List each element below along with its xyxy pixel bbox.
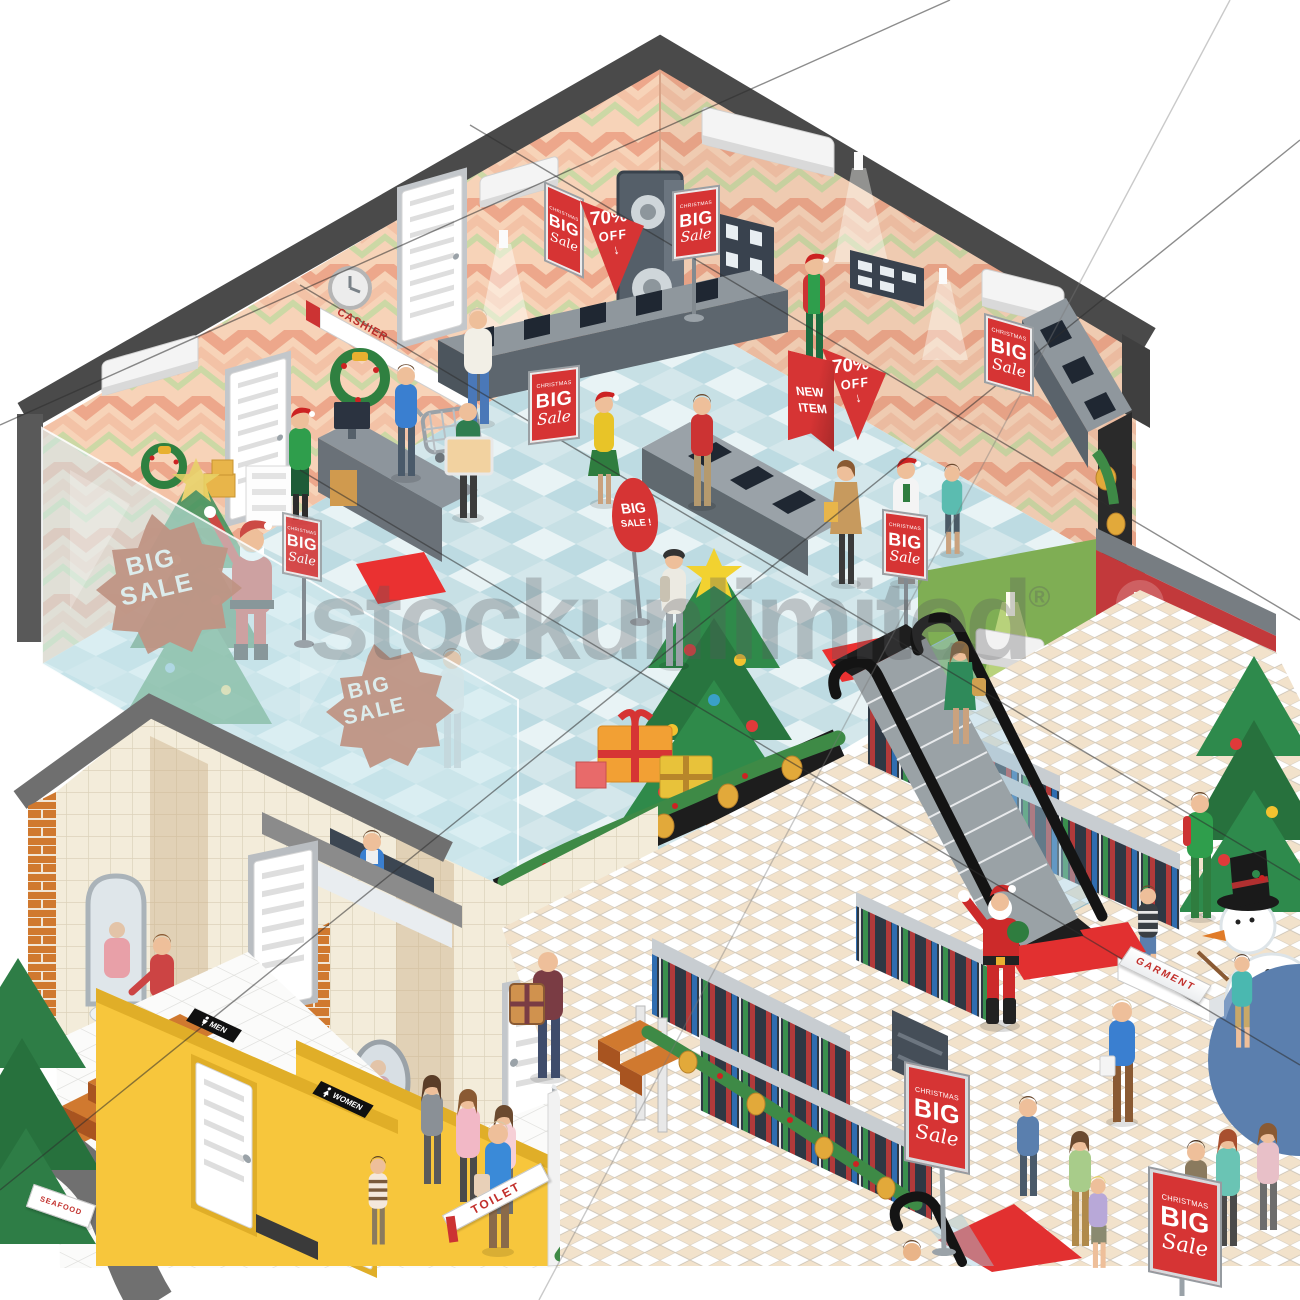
men-door xyxy=(191,1054,257,1237)
illustration-canvas: CASHIER CHRISTMAS BIG Sale CHRISTMAS BIG… xyxy=(0,0,1300,1300)
registered-mark: ® xyxy=(1028,581,1050,614)
christmas-big-sale-poster: CHRISTMAS BIG Sale xyxy=(986,315,1032,394)
christmas-big-sale-standing-sign: CHRISTMAS BIG Sale xyxy=(1150,1169,1220,1286)
christmas-big-sale-poster: CHRISTMAS BIG Sale xyxy=(674,187,718,259)
door xyxy=(397,167,467,349)
watermark-text: stockunlimited® xyxy=(308,556,1050,685)
christmas-big-sale-poster: CHRISTMAS BIG Sale xyxy=(530,367,578,443)
roof-corner-right xyxy=(1122,334,1150,428)
christmas-big-sale-poster: CHRISTMAS BIG Sale xyxy=(546,184,582,276)
christmas-big-sale-standing-sign: CHRISTMAS BIG Sale xyxy=(906,1063,968,1172)
